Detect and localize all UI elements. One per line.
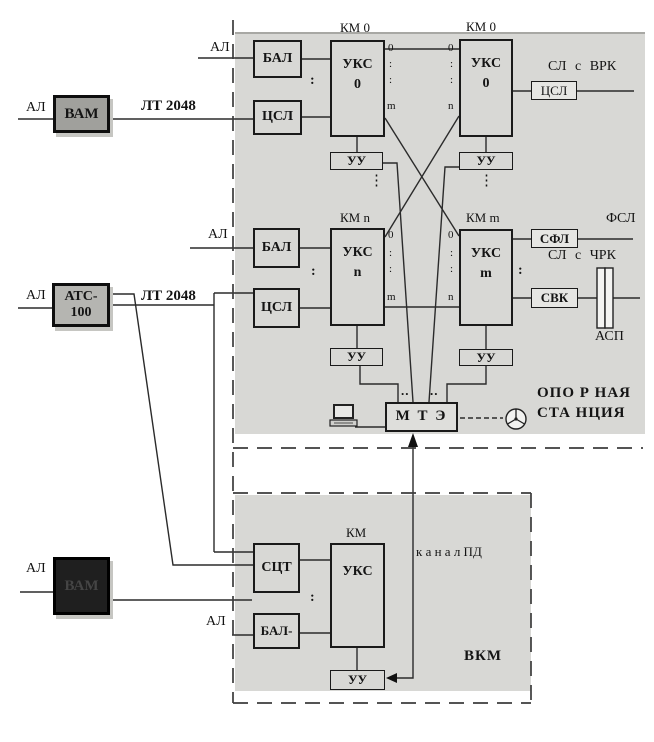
uksn-left-block: УКС n bbox=[330, 228, 385, 326]
fsl-caption: ФСЛ bbox=[606, 211, 636, 227]
sl-vrk-caption: СЛ с ВРК bbox=[548, 59, 616, 75]
lt2048-label-top: ЛТ 2048 bbox=[141, 98, 196, 115]
port-0: 0 bbox=[448, 42, 454, 54]
uu-row2-left-block: УУ bbox=[330, 348, 383, 366]
vam-bottom-block: ВАМ bbox=[53, 557, 110, 615]
station-name-line1: ОПО Р НАЯ bbox=[537, 383, 631, 403]
bal-minus-label: БАЛ- bbox=[261, 624, 293, 638]
uks-index: m bbox=[480, 267, 492, 282]
al-label-bal1: АЛ bbox=[210, 40, 230, 56]
uks0-left-block: УКС 0 bbox=[330, 40, 385, 137]
colon-sct-bal: : bbox=[310, 590, 315, 606]
bal-minus-block: БАЛ- bbox=[253, 613, 300, 649]
km0-caption-right: КМ 0 bbox=[466, 19, 496, 35]
hdots-right: .. bbox=[430, 383, 439, 399]
uks-index: n bbox=[354, 266, 362, 281]
km0-caption-left: КМ 0 bbox=[340, 20, 370, 36]
kmm-caption: КМ m bbox=[466, 210, 500, 226]
uu-label: УУ bbox=[347, 154, 366, 168]
ats-label-line1: АТС- bbox=[65, 289, 98, 305]
port-n: n bbox=[448, 100, 454, 112]
bal1-label: БАЛ bbox=[263, 52, 293, 67]
uksm-right-block: УКС m bbox=[459, 229, 513, 326]
station-name-line2: СТА НЦИЯ bbox=[537, 403, 631, 423]
uu-label: УУ bbox=[347, 350, 366, 364]
csl1-block: ЦСЛ bbox=[253, 100, 302, 135]
uks-label: УКС bbox=[342, 565, 372, 580]
al-label-bal-vkm: АЛ bbox=[206, 614, 226, 630]
sct-label: СЦТ bbox=[261, 561, 291, 576]
vam-bottom-label: ВАМ bbox=[64, 578, 98, 595]
csl-out-block: ЦСЛ bbox=[531, 81, 577, 100]
uks-index: 0 bbox=[354, 78, 361, 93]
uks-vkm-block: УКС bbox=[330, 543, 385, 648]
uu-label: УУ bbox=[476, 154, 495, 168]
csl1-label: ЦСЛ bbox=[262, 110, 293, 125]
uks-index: 0 bbox=[483, 77, 490, 92]
vkm-caption: ВКМ bbox=[464, 648, 502, 665]
uu-label: УУ bbox=[476, 351, 495, 365]
port-m: m bbox=[387, 100, 396, 112]
uu-vkm-block: УУ bbox=[330, 670, 385, 690]
bal2-label: БАЛ bbox=[262, 241, 292, 256]
diagram-canvas: ВАМ АТС- 100 ВАМ АЛ АЛ АЛ АЛ АЛ АЛ ЛТ 20… bbox=[0, 0, 654, 742]
station-name: ОПО Р НАЯ СТА НЦИЯ bbox=[537, 383, 631, 423]
uu-row1-left-block: УУ bbox=[330, 152, 383, 170]
uu-row2-right-block: УУ bbox=[459, 349, 513, 366]
port-0: 0 bbox=[388, 42, 394, 54]
uks-label: УКС bbox=[471, 247, 501, 262]
uu-row1-right-block: УУ bbox=[459, 152, 513, 170]
svk-label: СВК bbox=[541, 291, 569, 305]
csl2-label: ЦСЛ bbox=[261, 301, 292, 316]
svk-block: СВК bbox=[531, 288, 578, 308]
al-label-vam-top: АЛ bbox=[26, 100, 46, 116]
hdots-left: .. bbox=[401, 383, 410, 399]
port-colon: : bbox=[389, 263, 392, 275]
port-colon: : bbox=[450, 247, 453, 259]
al-label-ats: АЛ bbox=[26, 288, 46, 304]
uks-label: УКС bbox=[342, 246, 372, 261]
al-label-vam-bottom: АЛ bbox=[26, 561, 46, 577]
port-colon: : bbox=[389, 247, 392, 259]
port-colon: : bbox=[389, 58, 392, 70]
vdots-left: ⋮ bbox=[369, 176, 384, 186]
port-0: 0 bbox=[448, 229, 454, 241]
port-0: 0 bbox=[388, 229, 394, 241]
arrow-up-to-mte bbox=[408, 433, 418, 447]
al-label-bal2: АЛ bbox=[208, 227, 228, 243]
colon-bal-csl-1: : bbox=[310, 73, 315, 89]
uks-label: УКС bbox=[342, 58, 372, 73]
csl2-block: ЦСЛ bbox=[253, 288, 300, 328]
port-colon: : bbox=[450, 74, 453, 86]
port-colon: : bbox=[450, 58, 453, 70]
sl-chrk-caption: СЛ с ЧРК bbox=[548, 248, 616, 264]
port-n: n bbox=[448, 291, 454, 303]
csl-out-label: ЦСЛ bbox=[541, 84, 568, 98]
uu-label: УУ bbox=[348, 673, 367, 687]
vdots-right: ⋮ bbox=[479, 176, 494, 186]
lt2048-label-mid: ЛТ 2048 bbox=[141, 288, 196, 305]
mte-label: М Т Э bbox=[396, 409, 448, 425]
asp-caption: АСП bbox=[595, 329, 624, 345]
colon-uksm-right: : bbox=[518, 263, 523, 279]
sfl-block: СФЛ bbox=[531, 229, 578, 248]
port-m: m bbox=[387, 291, 396, 303]
vam-top-label: ВАМ bbox=[64, 106, 98, 123]
bal2-block: БАЛ bbox=[253, 228, 300, 268]
port-colon: : bbox=[450, 263, 453, 275]
kmn-caption: КМ n bbox=[340, 210, 370, 226]
uks0-right-block: УКС 0 bbox=[459, 39, 513, 137]
ats-label-line2: 100 bbox=[71, 305, 92, 321]
uks-label: УКС bbox=[471, 57, 501, 72]
vam-top-block: ВАМ bbox=[53, 95, 110, 133]
port-colon: : bbox=[389, 74, 392, 86]
km-caption-vkm: КМ bbox=[346, 525, 366, 541]
sct-block: СЦТ bbox=[253, 543, 300, 593]
sfl-label: СФЛ bbox=[540, 232, 569, 246]
bal1-block: БАЛ bbox=[253, 40, 302, 78]
mte-block: М Т Э bbox=[385, 402, 458, 432]
ats-100-block: АТС- 100 bbox=[52, 283, 110, 327]
colon-bal-csl-2: : bbox=[311, 264, 316, 280]
kanal-pd-caption: к а н а л ПД bbox=[416, 544, 482, 560]
